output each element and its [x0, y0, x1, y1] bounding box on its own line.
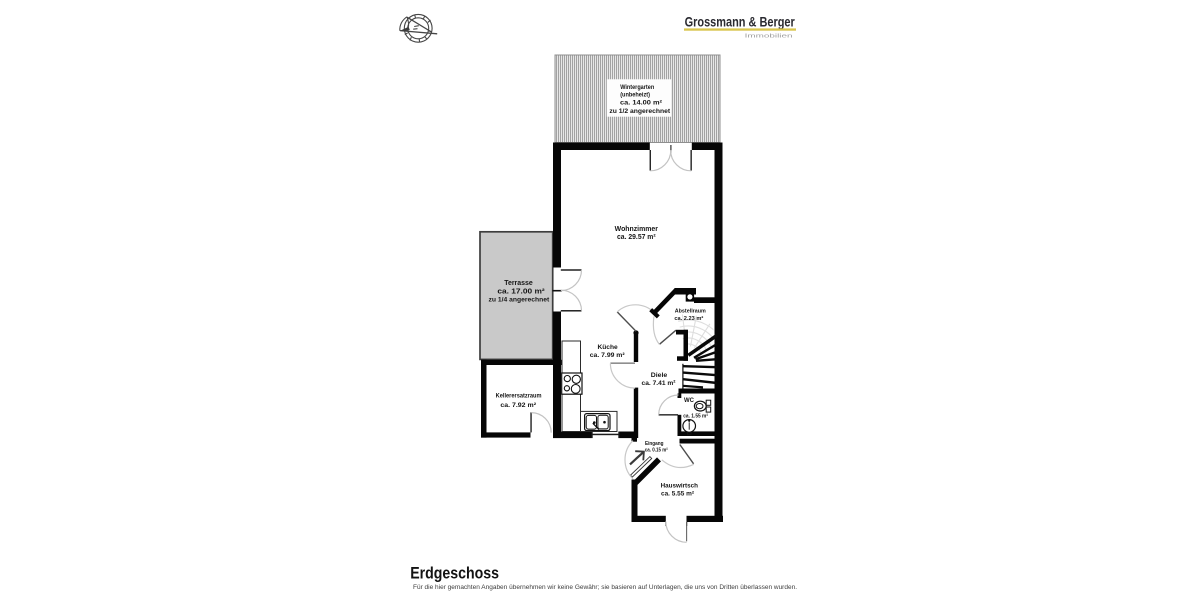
svg-text:ca. 5.55 m²: ca. 5.55 m² — [661, 490, 695, 497]
svg-text:Immobilien: Immobilien — [745, 33, 793, 39]
svg-text:(unbeheizt): (unbeheizt) — [620, 93, 650, 99]
svg-text:Kellerersatzraum: Kellerersatzraum — [496, 392, 542, 399]
svg-text:Diele: Diele — [651, 372, 668, 379]
svg-text:Wintergarten: Wintergarten — [620, 85, 654, 91]
svg-text:zu 1/2 angerechnet: zu 1/2 angerechnet — [609, 108, 671, 115]
svg-text:ca. 14.00 m²: ca. 14.00 m² — [620, 100, 663, 107]
svg-text:ca. 2.23 m²: ca. 2.23 m² — [674, 315, 703, 322]
svg-text:ca. 0.15 m²: ca. 0.15 m² — [645, 446, 668, 453]
svg-text:Abstellraum: Abstellraum — [675, 308, 706, 314]
svg-text:ca. 29.57 m²: ca. 29.57 m² — [617, 234, 656, 241]
svg-text:Eingang: Eingang — [645, 441, 664, 447]
svg-text:Hauswirtsch: Hauswirtsch — [661, 483, 698, 490]
svg-text:Für die hier gemachten Angaben: Für die hier gemachten Angaben übernehme… — [413, 584, 797, 591]
svg-text:ca. 7.92 m²: ca. 7.92 m² — [500, 402, 537, 409]
svg-text:Küche: Küche — [598, 344, 619, 351]
svg-text:Terrasse: Terrasse — [504, 280, 533, 287]
svg-text:Erdgeschoss: Erdgeschoss — [410, 565, 499, 583]
svg-text:WC: WC — [684, 397, 694, 404]
svg-text:Wohnzimmer: Wohnzimmer — [615, 226, 659, 233]
svg-text:ca. 1.55 m²: ca. 1.55 m² — [683, 413, 708, 420]
svg-text:ca. 7.41 m²: ca. 7.41 m² — [642, 380, 677, 387]
svg-text:ca. 7.99 m²: ca. 7.99 m² — [590, 352, 626, 359]
svg-text:zu 1/4 angerechnet: zu 1/4 angerechnet — [489, 297, 551, 304]
svg-text:ca. 17.00 m²: ca. 17.00 m² — [497, 288, 545, 295]
svg-text:Grossmann & Berger: Grossmann & Berger — [685, 14, 796, 30]
